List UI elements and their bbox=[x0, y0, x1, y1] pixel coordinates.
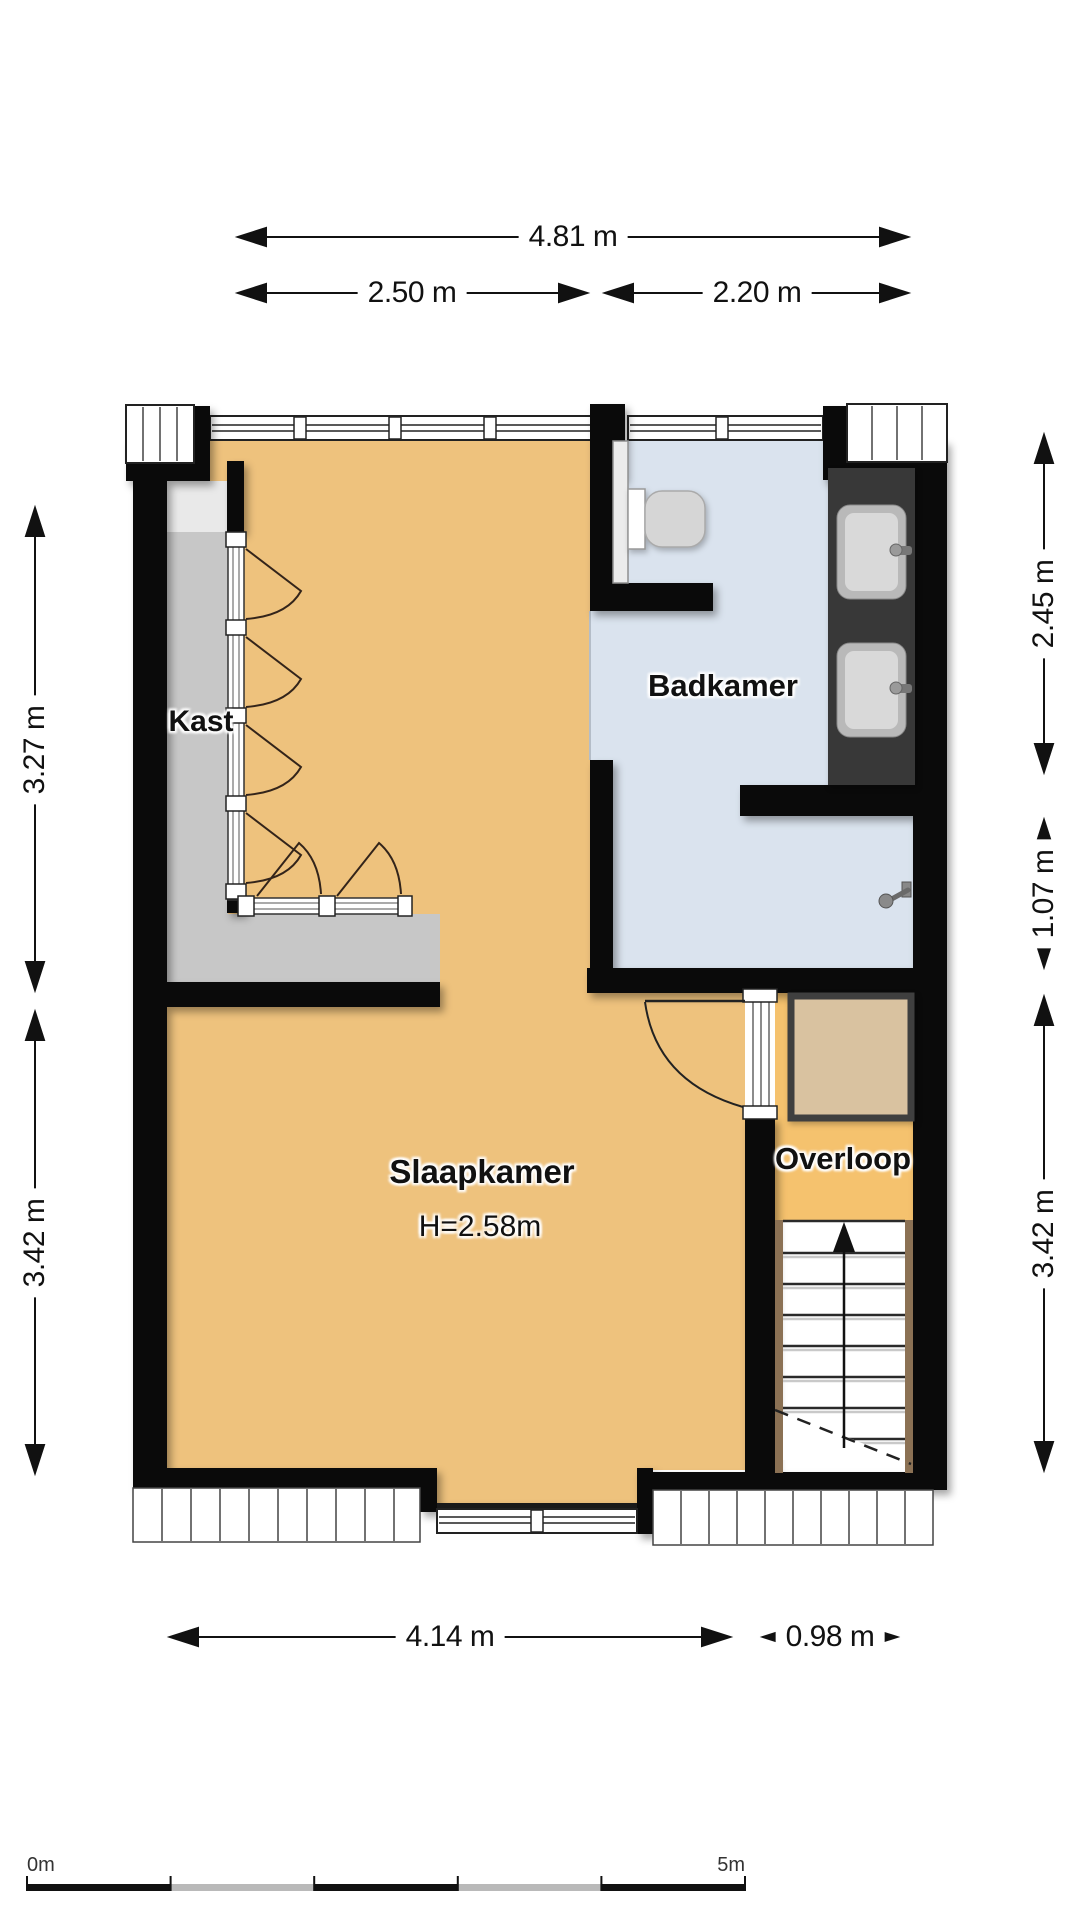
dim-label-bottom-right: 0.98 m bbox=[776, 1620, 885, 1654]
sink-icon-2 bbox=[837, 643, 912, 737]
stairs-stringer-right bbox=[905, 1220, 913, 1473]
scale-start-label: 0m bbox=[27, 1854, 55, 1877]
wall-counter-back bbox=[740, 785, 915, 816]
wall-kast-top bbox=[227, 461, 244, 532]
dim-label-left-upper: 3.27 m bbox=[18, 696, 52, 805]
slaapkamer-height-label: H=2.58m bbox=[419, 1210, 542, 1244]
dim-label-top-right: 2.20 m bbox=[703, 276, 812, 310]
wall-badkamer-partition-upper bbox=[590, 420, 615, 611]
roof-hatch-bottom-left bbox=[133, 1488, 420, 1542]
wall-bottom-left bbox=[133, 1468, 437, 1488]
vanity-counter bbox=[828, 468, 915, 785]
dim-label-top-total: 4.81 m bbox=[519, 220, 628, 254]
window-top-left bbox=[210, 416, 595, 440]
floorplan-drawing bbox=[0, 0, 1080, 1920]
dim-label-right-lower: 3.42 m bbox=[1027, 1180, 1061, 1289]
slaapkamer-label: Slaapkamer bbox=[389, 1153, 574, 1191]
wall-bottom-right bbox=[637, 1472, 947, 1490]
window-top-right bbox=[628, 416, 823, 440]
dim-label-bottom-left: 4.14 m bbox=[396, 1620, 505, 1654]
slaapkamer-bay-floor bbox=[437, 1470, 637, 1505]
badkamer-door-leaf bbox=[613, 441, 628, 583]
wall-bay-left bbox=[420, 1468, 437, 1512]
wall-badkamer-partition-lower bbox=[590, 760, 613, 993]
roof-hatch-bottom-right bbox=[653, 1490, 933, 1545]
roof-hatch-top-left bbox=[126, 405, 194, 463]
scale-end-label: 5m bbox=[717, 1854, 745, 1877]
top-windows bbox=[210, 416, 823, 440]
toilet-icon bbox=[628, 489, 705, 549]
badkamer-label: Badkamer bbox=[648, 668, 798, 704]
dim-label-right-upper: 2.45 m bbox=[1027, 550, 1061, 659]
dim-label-top-left: 2.50 m bbox=[358, 276, 467, 310]
scale-bar bbox=[27, 1876, 745, 1891]
wall-left bbox=[133, 460, 167, 1488]
stairs-stringer-left bbox=[775, 1220, 783, 1473]
wall-pier-left bbox=[194, 406, 210, 480]
landing-void-square bbox=[791, 996, 911, 1118]
floorplan-page: Kast Badkamer Slaapkamer H=2.58m Overloo… bbox=[0, 0, 1080, 1920]
window-bottom-bay bbox=[437, 1509, 637, 1533]
kast-label: Kast bbox=[168, 705, 233, 739]
kast-floor-light bbox=[167, 481, 228, 532]
wall-badkamer-L bbox=[590, 583, 713, 611]
wall-stairwell bbox=[745, 1117, 775, 1472]
dim-label-left-lower: 3.42 m bbox=[18, 1189, 52, 1298]
roof-hatch-top-right bbox=[847, 404, 947, 462]
kast-floor-bottom bbox=[167, 914, 440, 982]
sink-icon-1 bbox=[837, 505, 912, 599]
overloop-label: Overloop bbox=[775, 1141, 911, 1177]
wall-kast-bottom bbox=[133, 982, 440, 1007]
wall-bay-right bbox=[637, 1468, 653, 1534]
dim-label-right-middle: 1.07 m bbox=[1027, 840, 1061, 949]
